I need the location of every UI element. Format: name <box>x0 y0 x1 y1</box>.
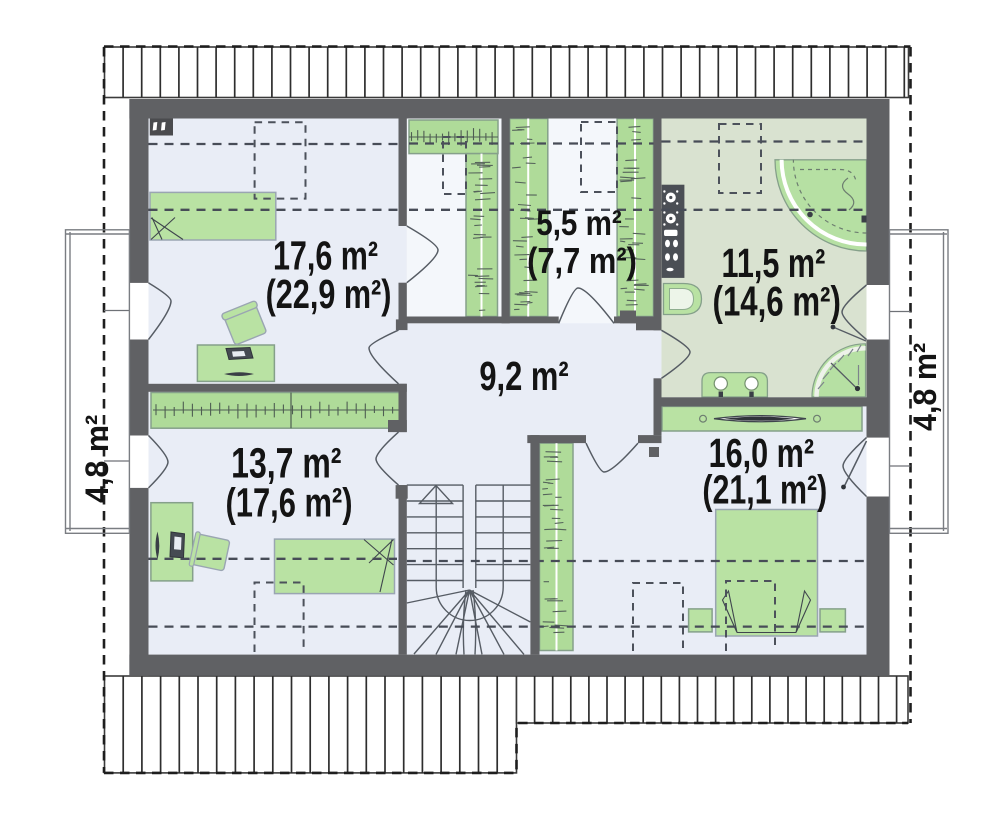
svg-text:(22,9 m²): (22,9 m²) <box>266 271 392 317</box>
svg-text:4,8 m²: 4,8 m² <box>79 415 115 503</box>
svg-text:4,8 m²: 4,8 m² <box>907 343 943 431</box>
svg-text:(14,6 m²): (14,6 m²) <box>713 278 841 324</box>
svg-text:(7,7 m²): (7,7 m²) <box>527 242 637 282</box>
svg-text:(17,6 m²): (17,6 m²) <box>225 479 352 525</box>
svg-text:5,5 m²: 5,5 m² <box>536 202 622 242</box>
svg-text:9,2 m²: 9,2 m² <box>479 353 568 399</box>
svg-text:(21,1 m²): (21,1 m²) <box>702 467 827 512</box>
